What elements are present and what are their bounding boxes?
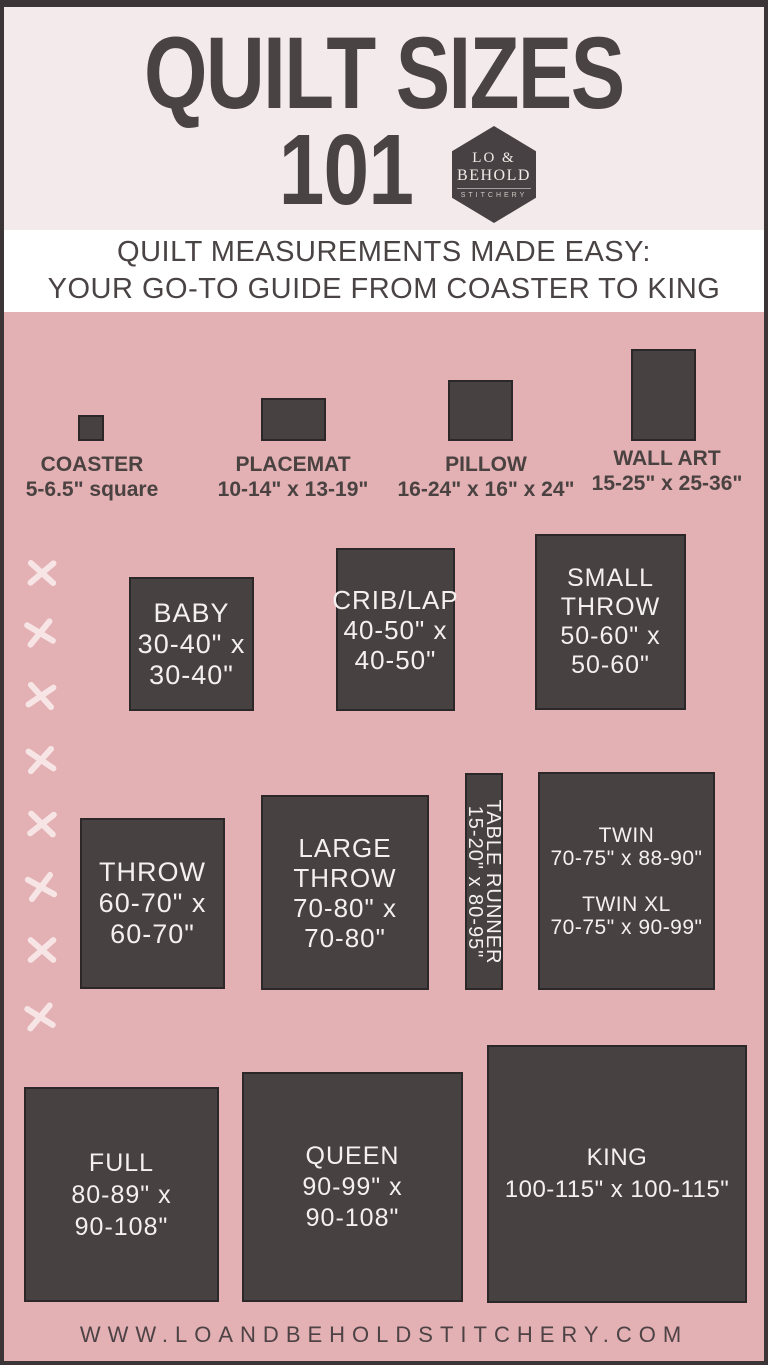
stitch-x-icon	[21, 615, 59, 651]
tagline-line-1: QUILT MEASUREMENTS MADE EASY:	[117, 234, 651, 271]
quilt-line: TABLE RUNNER	[484, 776, 502, 988]
quilt-line: 60-70" x	[99, 888, 207, 919]
stitch-x-icon	[22, 869, 61, 906]
website-url: WWW.LOANDBEHOLDSTITCHERY.COM	[0, 1322, 768, 1348]
quilt-line: 90-99" x	[302, 1172, 402, 1203]
quilt-line: 80-89" x	[71, 1179, 171, 1211]
quilt-line: KING	[587, 1142, 648, 1174]
pillow-size: 16-24" x 16" x 24"	[398, 477, 575, 502]
quilt-line: THROW	[99, 857, 206, 888]
full-quilt-rect: FULL 80-89" x 90-108"	[24, 1087, 219, 1302]
baby-quilt-rect: BABY 30-40" x 30-40"	[129, 577, 254, 711]
table-runner-rect: TABLE RUNNER 15-20" x 80-95"	[465, 773, 503, 990]
throw-quilt-rect: THROW 60-70" x 60-70"	[80, 818, 225, 989]
quilt-line: FULL	[89, 1147, 154, 1179]
twin-quilt-rect: TWIN 70-75" x 88-90" TWIN XL 70-75" x 90…	[538, 772, 715, 990]
quilt-line: CRIB/LAP	[332, 585, 459, 615]
tagline-line-2: YOUR GO-TO GUIDE FROM COASTER TO KING	[48, 271, 721, 308]
logo-line-3: STITCHERY	[461, 192, 528, 199]
pillow-shape	[448, 380, 513, 441]
crib-lap-quilt-rect: CRIB/LAP 40-50" x 40-50"	[336, 548, 455, 711]
stitch-x-icon	[24, 933, 60, 967]
quilt-line: 50-60"	[571, 651, 650, 680]
quilt-line: 50-60" x	[560, 622, 660, 651]
placemat-name: PLACEMAT	[218, 452, 369, 477]
placemat-shape	[261, 398, 326, 441]
quilt-line: 90-108"	[75, 1211, 169, 1243]
pillow-name: PILLOW	[398, 452, 575, 477]
coaster-shape	[78, 415, 104, 441]
quilt-line: SMALL	[567, 564, 654, 593]
logo-line-1: LO &	[472, 150, 515, 167]
quilt-sizes-infographic: QUILT SIZES 101 LO & BEHOLD STITCHERY QU…	[0, 0, 768, 1365]
stitch-x-icon	[21, 999, 58, 1034]
king-quilt-rect: KING 100-115" x 100-115"	[487, 1045, 747, 1303]
wall-art-name: WALL ART	[592, 446, 743, 471]
quilt-line: QUEEN	[306, 1141, 400, 1172]
wall-art-size: 15-25" x 25-36"	[592, 471, 743, 496]
quilt-line: TWIN XL	[582, 893, 671, 916]
quilt-line: 60-70"	[110, 919, 195, 950]
coaster-size: 5-6.5" square	[26, 477, 159, 502]
page-title: QUILT SIZES	[0, 22, 768, 124]
stitch-x-icon	[21, 677, 60, 714]
quilt-line: 30-40" x	[138, 629, 246, 660]
quilt-line: LARGE	[298, 833, 391, 863]
quilt-line: THROW	[293, 863, 396, 893]
title-101-text: 101	[279, 120, 413, 220]
quilt-line: 70-75" x 90-99"	[551, 916, 703, 939]
quilt-line-spacer	[623, 870, 629, 893]
wall-art-shape	[631, 349, 696, 441]
stitch-x-icon	[24, 556, 60, 590]
title-101: 101	[226, 120, 466, 220]
stitch-x-icon	[23, 743, 59, 777]
quilt-line: THROW	[561, 593, 660, 622]
coaster-label: COASTER 5-6.5" square	[26, 452, 159, 502]
quilt-line: 70-80"	[304, 923, 386, 953]
quilt-line: 100-115" x 100-115"	[505, 1174, 729, 1206]
pillow-label: PILLOW 16-24" x 16" x 24"	[398, 452, 575, 502]
stitch-x-icon	[23, 806, 60, 841]
quilt-line: TWIN	[599, 824, 655, 847]
coaster-name: COASTER	[26, 452, 159, 477]
quilt-line: 15-20" x 80-95"	[466, 776, 484, 988]
small-throw-quilt-rect: SMALL THROW 50-60" x 50-60"	[535, 534, 686, 710]
header: QUILT SIZES 101 LO & BEHOLD STITCHERY	[0, 0, 768, 230]
quilt-line: 70-75" x 88-90"	[551, 847, 703, 870]
table-runner-rotated-text: TABLE RUNNER 15-20" x 80-95"	[466, 776, 502, 988]
quilt-line: 90-108"	[306, 1203, 400, 1234]
quilt-line: 40-50" x	[344, 615, 448, 645]
quilt-line: BABY	[153, 598, 229, 629]
wall-art-label: WALL ART 15-25" x 25-36"	[592, 446, 743, 496]
queen-quilt-rect: QUEEN 90-99" x 90-108"	[242, 1072, 463, 1302]
logo-line-2: BEHOLD	[457, 167, 531, 189]
quilt-line: 30-40"	[149, 660, 234, 691]
title-text: QUILT SIZES	[144, 22, 624, 124]
tagline-band: QUILT MEASUREMENTS MADE EASY: YOUR GO-TO…	[0, 230, 768, 312]
placemat-label: PLACEMAT 10-14" x 13-19"	[218, 452, 369, 502]
placemat-size: 10-14" x 13-19"	[218, 477, 369, 502]
quilt-line: 70-80" x	[293, 893, 397, 923]
large-throw-quilt-rect: LARGE THROW 70-80" x 70-80"	[261, 795, 429, 990]
quilt-line: 40-50"	[355, 645, 437, 675]
